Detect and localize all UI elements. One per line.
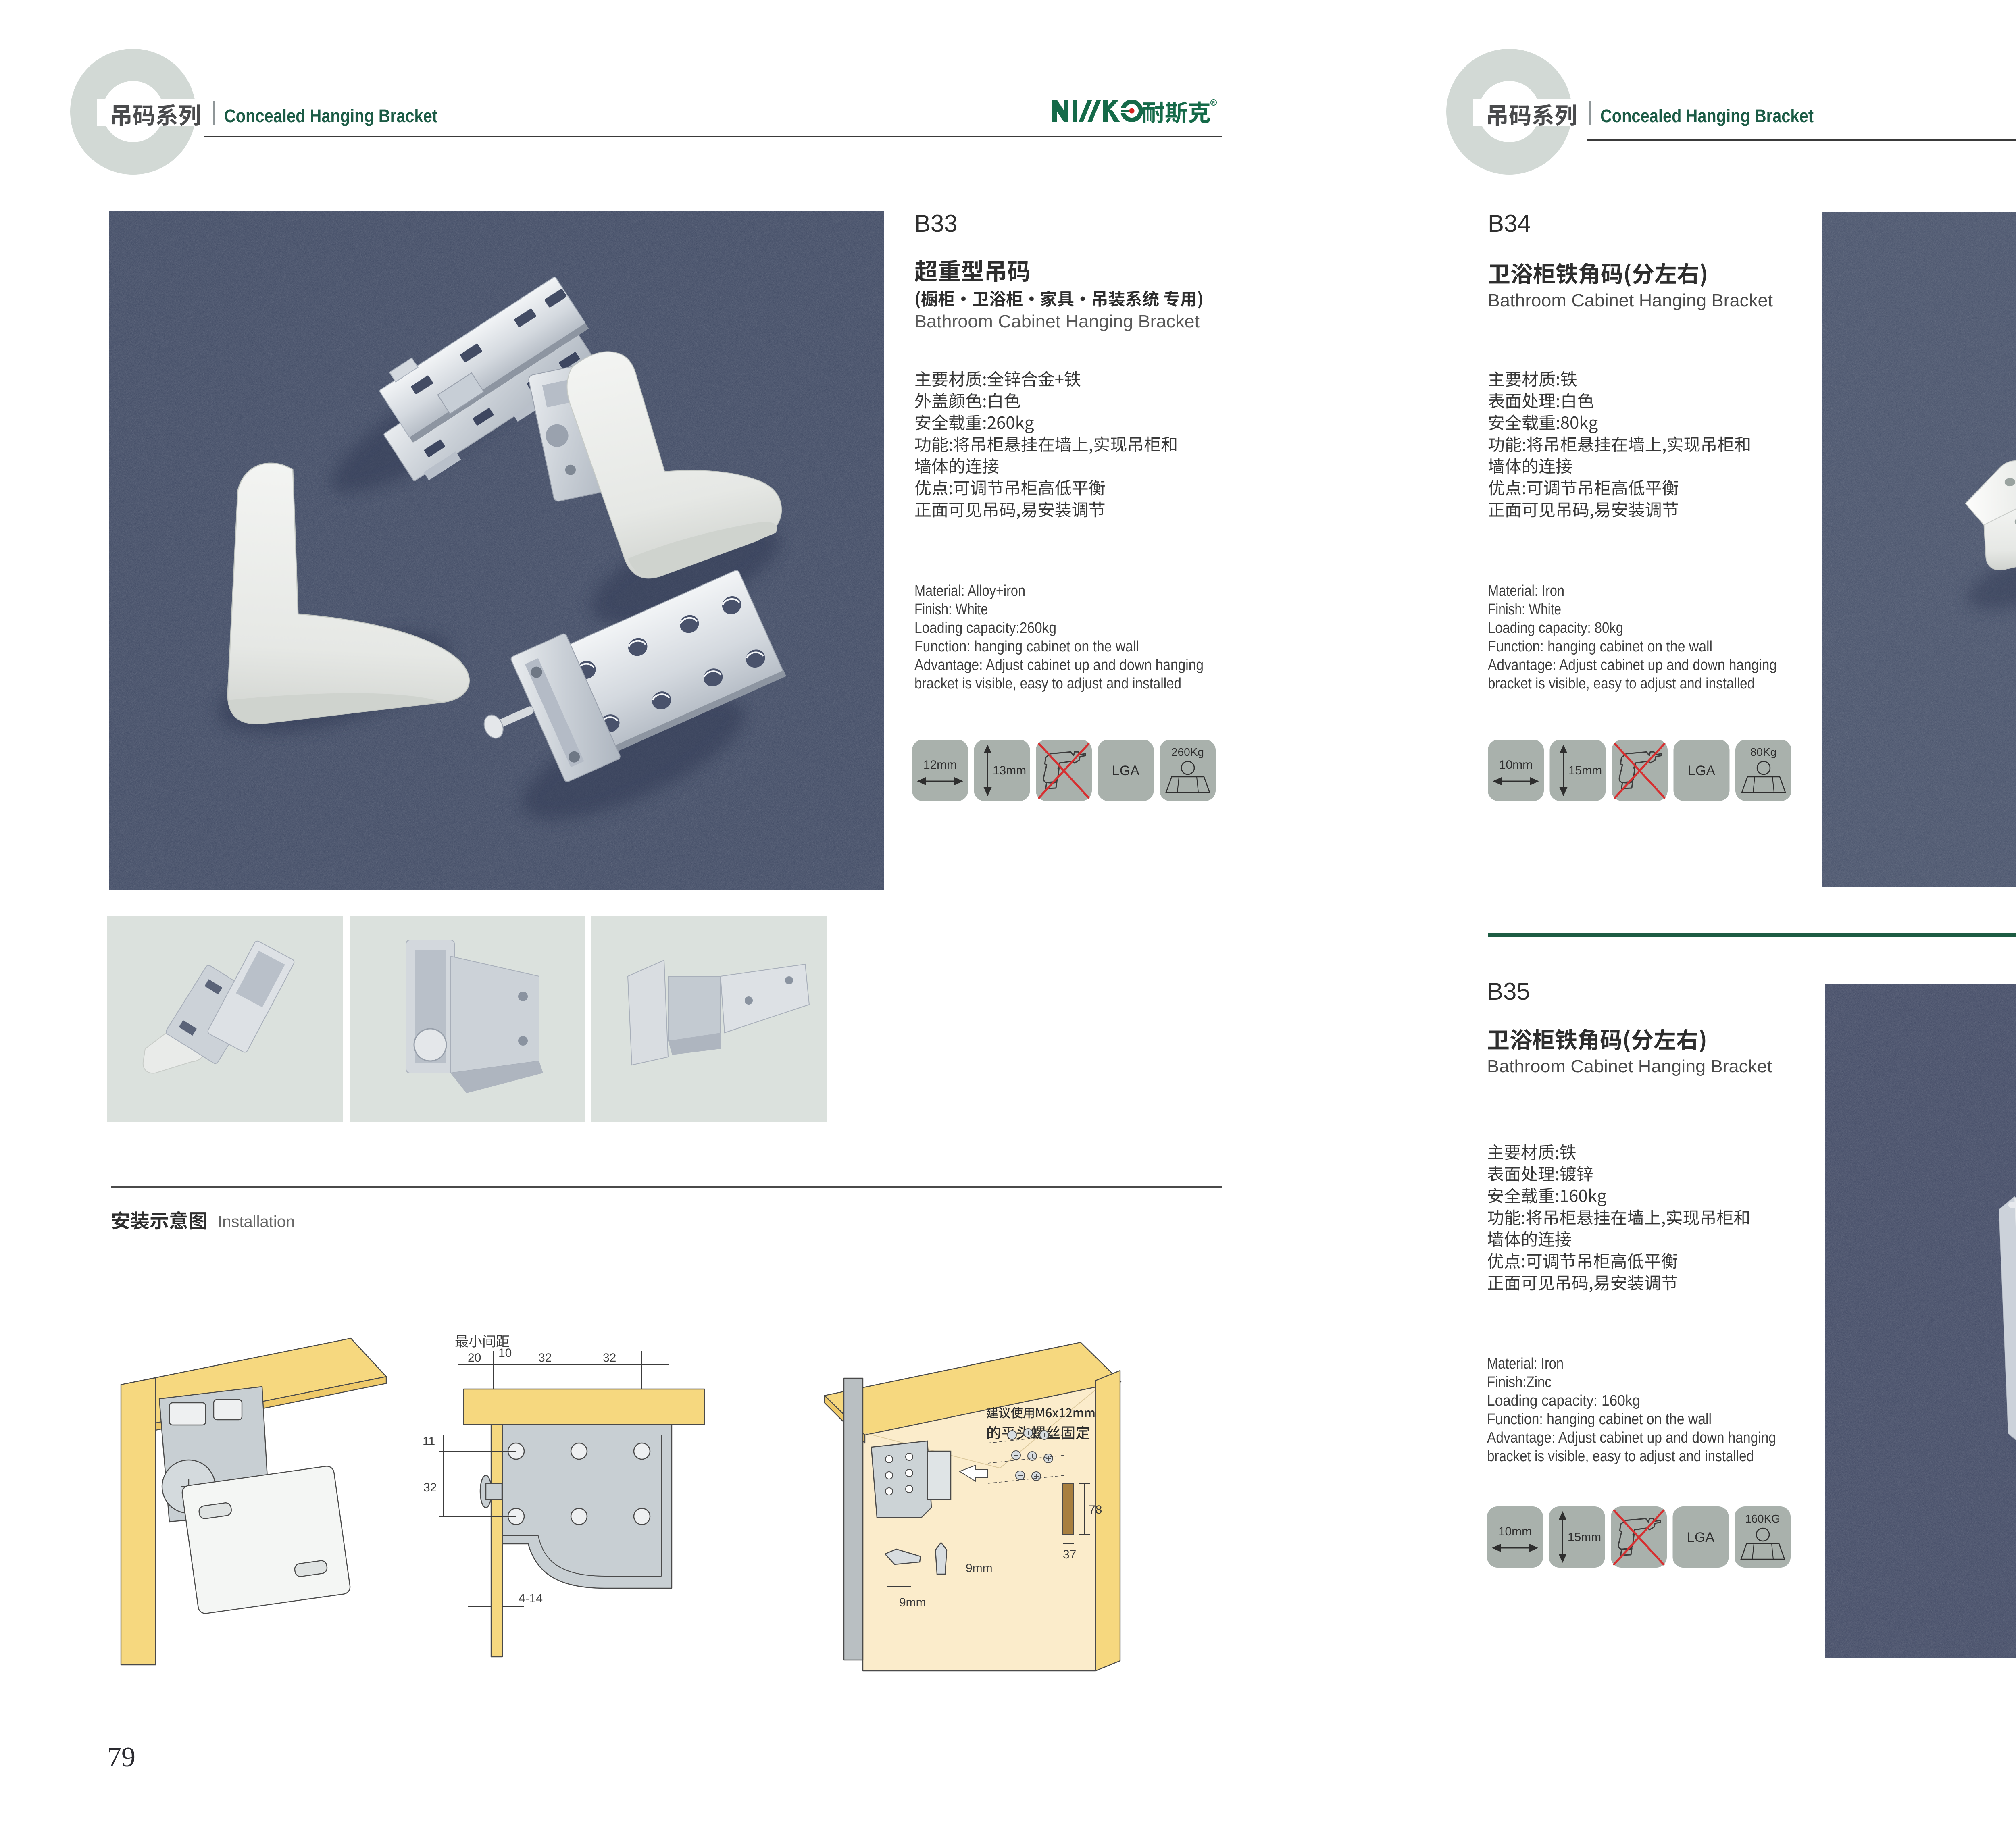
svg-text:15mm: 15mm <box>1568 764 1602 777</box>
svg-text:13mm: 13mm <box>993 764 1026 777</box>
svg-text:4-14: 4-14 <box>519 1592 543 1605</box>
svg-text:11: 11 <box>423 1435 435 1448</box>
svg-text:Concealed Hanging Bracket: Concealed Hanging Bracket <box>1600 106 1814 126</box>
svg-text:Installation: Installation <box>218 1213 295 1231</box>
svg-text:10mm: 10mm <box>1499 758 1533 772</box>
svg-text:160KG: 160KG <box>1745 1512 1780 1525</box>
svg-text:80Kg: 80Kg <box>1750 746 1776 758</box>
svg-text:Loading capacity: 80kg: Loading capacity: 80kg <box>1488 620 1623 636</box>
svg-text:bracket is visible, easy to ad: bracket is visible, easy to adjust and i… <box>1487 1448 1754 1465</box>
svg-text:B33: B33 <box>914 210 958 237</box>
svg-text:Concealed Hanging Bracket: Concealed Hanging Bracket <box>224 106 437 126</box>
svg-text:Finish: White: Finish: White <box>914 601 988 618</box>
svg-text:Function: hanging cabinet on t: Function: hanging cabinet on the wall <box>914 638 1139 655</box>
svg-text:78: 78 <box>1089 1503 1102 1516</box>
svg-text:Loading capacity: 160kg: Loading capacity: 160kg <box>1487 1392 1640 1409</box>
svg-text:bracket is visible, easy to ad: bracket is visible, easy to adjust and i… <box>914 675 1181 692</box>
svg-text:9mm: 9mm <box>899 1596 926 1609</box>
svg-text:Function: hanging cabinet on t: Function: hanging cabinet on the wall <box>1488 638 1712 655</box>
svg-text:10mm: 10mm <box>1498 1525 1532 1538</box>
svg-text:32: 32 <box>423 1481 437 1494</box>
svg-text:B35: B35 <box>1487 978 1530 1005</box>
svg-text:20: 20 <box>468 1351 481 1364</box>
svg-text:Finish:Zinc: Finish:Zinc <box>1487 1374 1552 1391</box>
svg-text:Material: Alloy+iron: Material: Alloy+iron <box>914 582 1025 599</box>
svg-text:Bathroom Cabinet Hanging Brack: Bathroom Cabinet Hanging Bracket <box>914 312 1200 331</box>
svg-text:R: R <box>1212 101 1215 105</box>
svg-text:LGA: LGA <box>1688 763 1715 778</box>
svg-text:15mm: 15mm <box>1568 1531 1601 1544</box>
svg-text:260Kg: 260Kg <box>1171 746 1204 758</box>
svg-text:Finish: White: Finish: White <box>1488 601 1561 618</box>
svg-text:Bathroom Cabinet Hanging Brack: Bathroom Cabinet Hanging Bracket <box>1488 291 1773 310</box>
svg-text:Material: Iron: Material: Iron <box>1487 1355 1564 1372</box>
svg-text:Advantage: Adjust cabinet up a: Advantage: Adjust cabinet up and down ha… <box>1487 1429 1776 1446</box>
svg-text:37: 37 <box>1063 1548 1076 1561</box>
svg-text:Bathroom Cabinet Hanging Brack: Bathroom Cabinet Hanging Bracket <box>1487 1057 1772 1076</box>
svg-text:Advantage: Adjust cabinet up a: Advantage: Adjust cabinet up and down ha… <box>1488 657 1777 674</box>
svg-text:79: 79 <box>107 1742 135 1773</box>
svg-text:9mm: 9mm <box>966 1562 993 1575</box>
svg-text:B34: B34 <box>1488 210 1531 237</box>
svg-text:32: 32 <box>603 1351 616 1364</box>
svg-text:LGA: LGA <box>1112 763 1139 778</box>
svg-text:LGA: LGA <box>1687 1530 1714 1545</box>
svg-text:Advantage: Adjust cabinet up a: Advantage: Adjust cabinet up and down ha… <box>914 657 1204 674</box>
svg-text:Material: Iron: Material: Iron <box>1488 582 1564 599</box>
svg-text:Loading capacity:260kg: Loading capacity:260kg <box>914 620 1056 636</box>
svg-text:Function: hanging cabinet on t: Function: hanging cabinet on the wall <box>1487 1411 1712 1428</box>
svg-text:10: 10 <box>498 1346 512 1360</box>
svg-text:32: 32 <box>538 1351 552 1364</box>
svg-text:bracket is visible, easy to ad: bracket is visible, easy to adjust and i… <box>1488 675 1755 692</box>
svg-text:12mm: 12mm <box>923 758 957 772</box>
